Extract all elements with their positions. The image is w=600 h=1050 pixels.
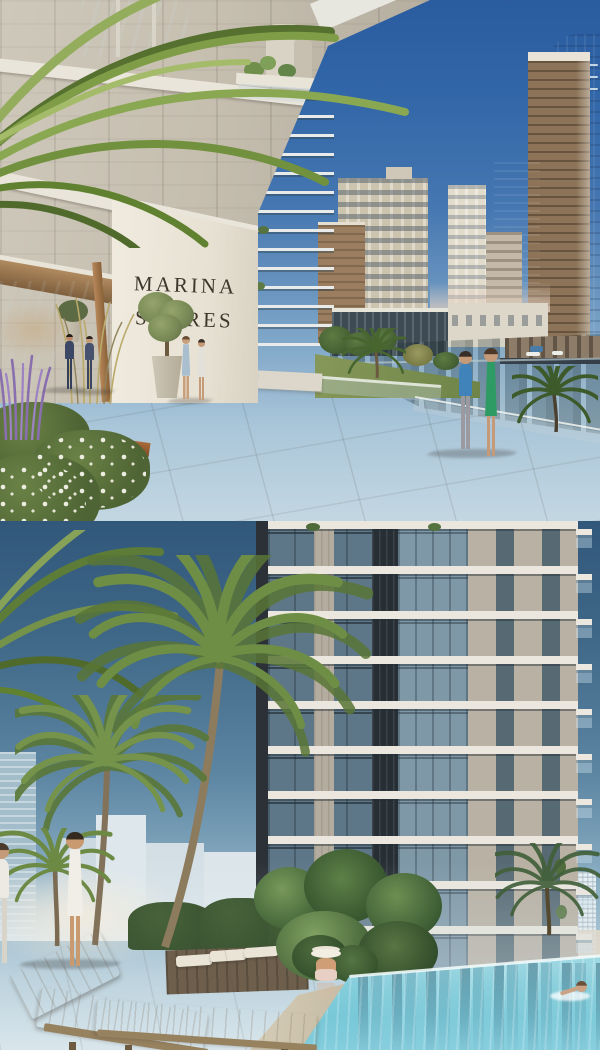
man-blue-shirt [455,351,476,449]
chaise-leg [69,1042,76,1050]
woman-green-dress [480,348,502,456]
foreground-palm-fronds [0,0,452,248]
lavender [0,330,62,440]
person-head [198,339,206,347]
boat [552,351,563,355]
person-legs [70,916,80,966]
person-torso [485,362,497,416]
person-left-edge [0,843,14,963]
person-torso [182,344,191,376]
panel-tower-pool [0,521,600,1050]
person-head [66,334,73,341]
swimmer-head [576,981,587,992]
person-torso [0,859,9,899]
person-legs [199,377,204,400]
person-torso [85,343,93,360]
dry-bush [403,344,433,366]
person-head [0,843,9,859]
planter-bench-wall [258,370,323,391]
boat-tarp [530,346,543,352]
flower-planter [0,378,165,521]
swimmer [548,979,600,1013]
olive-tree-foliage [148,314,182,342]
woman-white-dress [194,339,209,400]
balcony-plant [428,523,441,531]
chaise-leg [125,1045,132,1050]
park-palm [342,328,406,380]
person-legs [0,898,7,963]
boat [526,352,540,356]
waterside-palm [512,366,598,436]
person-torso [65,341,73,359]
marina-shores-render-collage: MARINA SHORES [0,0,600,1050]
person-torso [67,849,83,916]
person-legs [487,416,494,456]
balcony-plant [306,523,320,531]
panel-entrance-plaza: MARINA SHORES [0,0,600,521]
person-head [86,336,93,343]
person-legs [183,376,188,399]
background-palm-right [495,843,600,943]
person-legs [87,360,93,389]
person-legs [461,396,471,449]
woman-blue-dress [178,336,194,399]
suited-man [63,334,76,389]
person-head [182,336,190,344]
person-torso [197,347,205,378]
chaise-lounge-flat [95,999,330,1050]
person-legs [67,359,73,389]
person-head [484,348,498,362]
standing-woman-white [60,832,90,966]
person-head [66,832,83,849]
person-head [459,351,472,364]
suited-man [83,336,96,389]
person-torso [459,364,472,396]
